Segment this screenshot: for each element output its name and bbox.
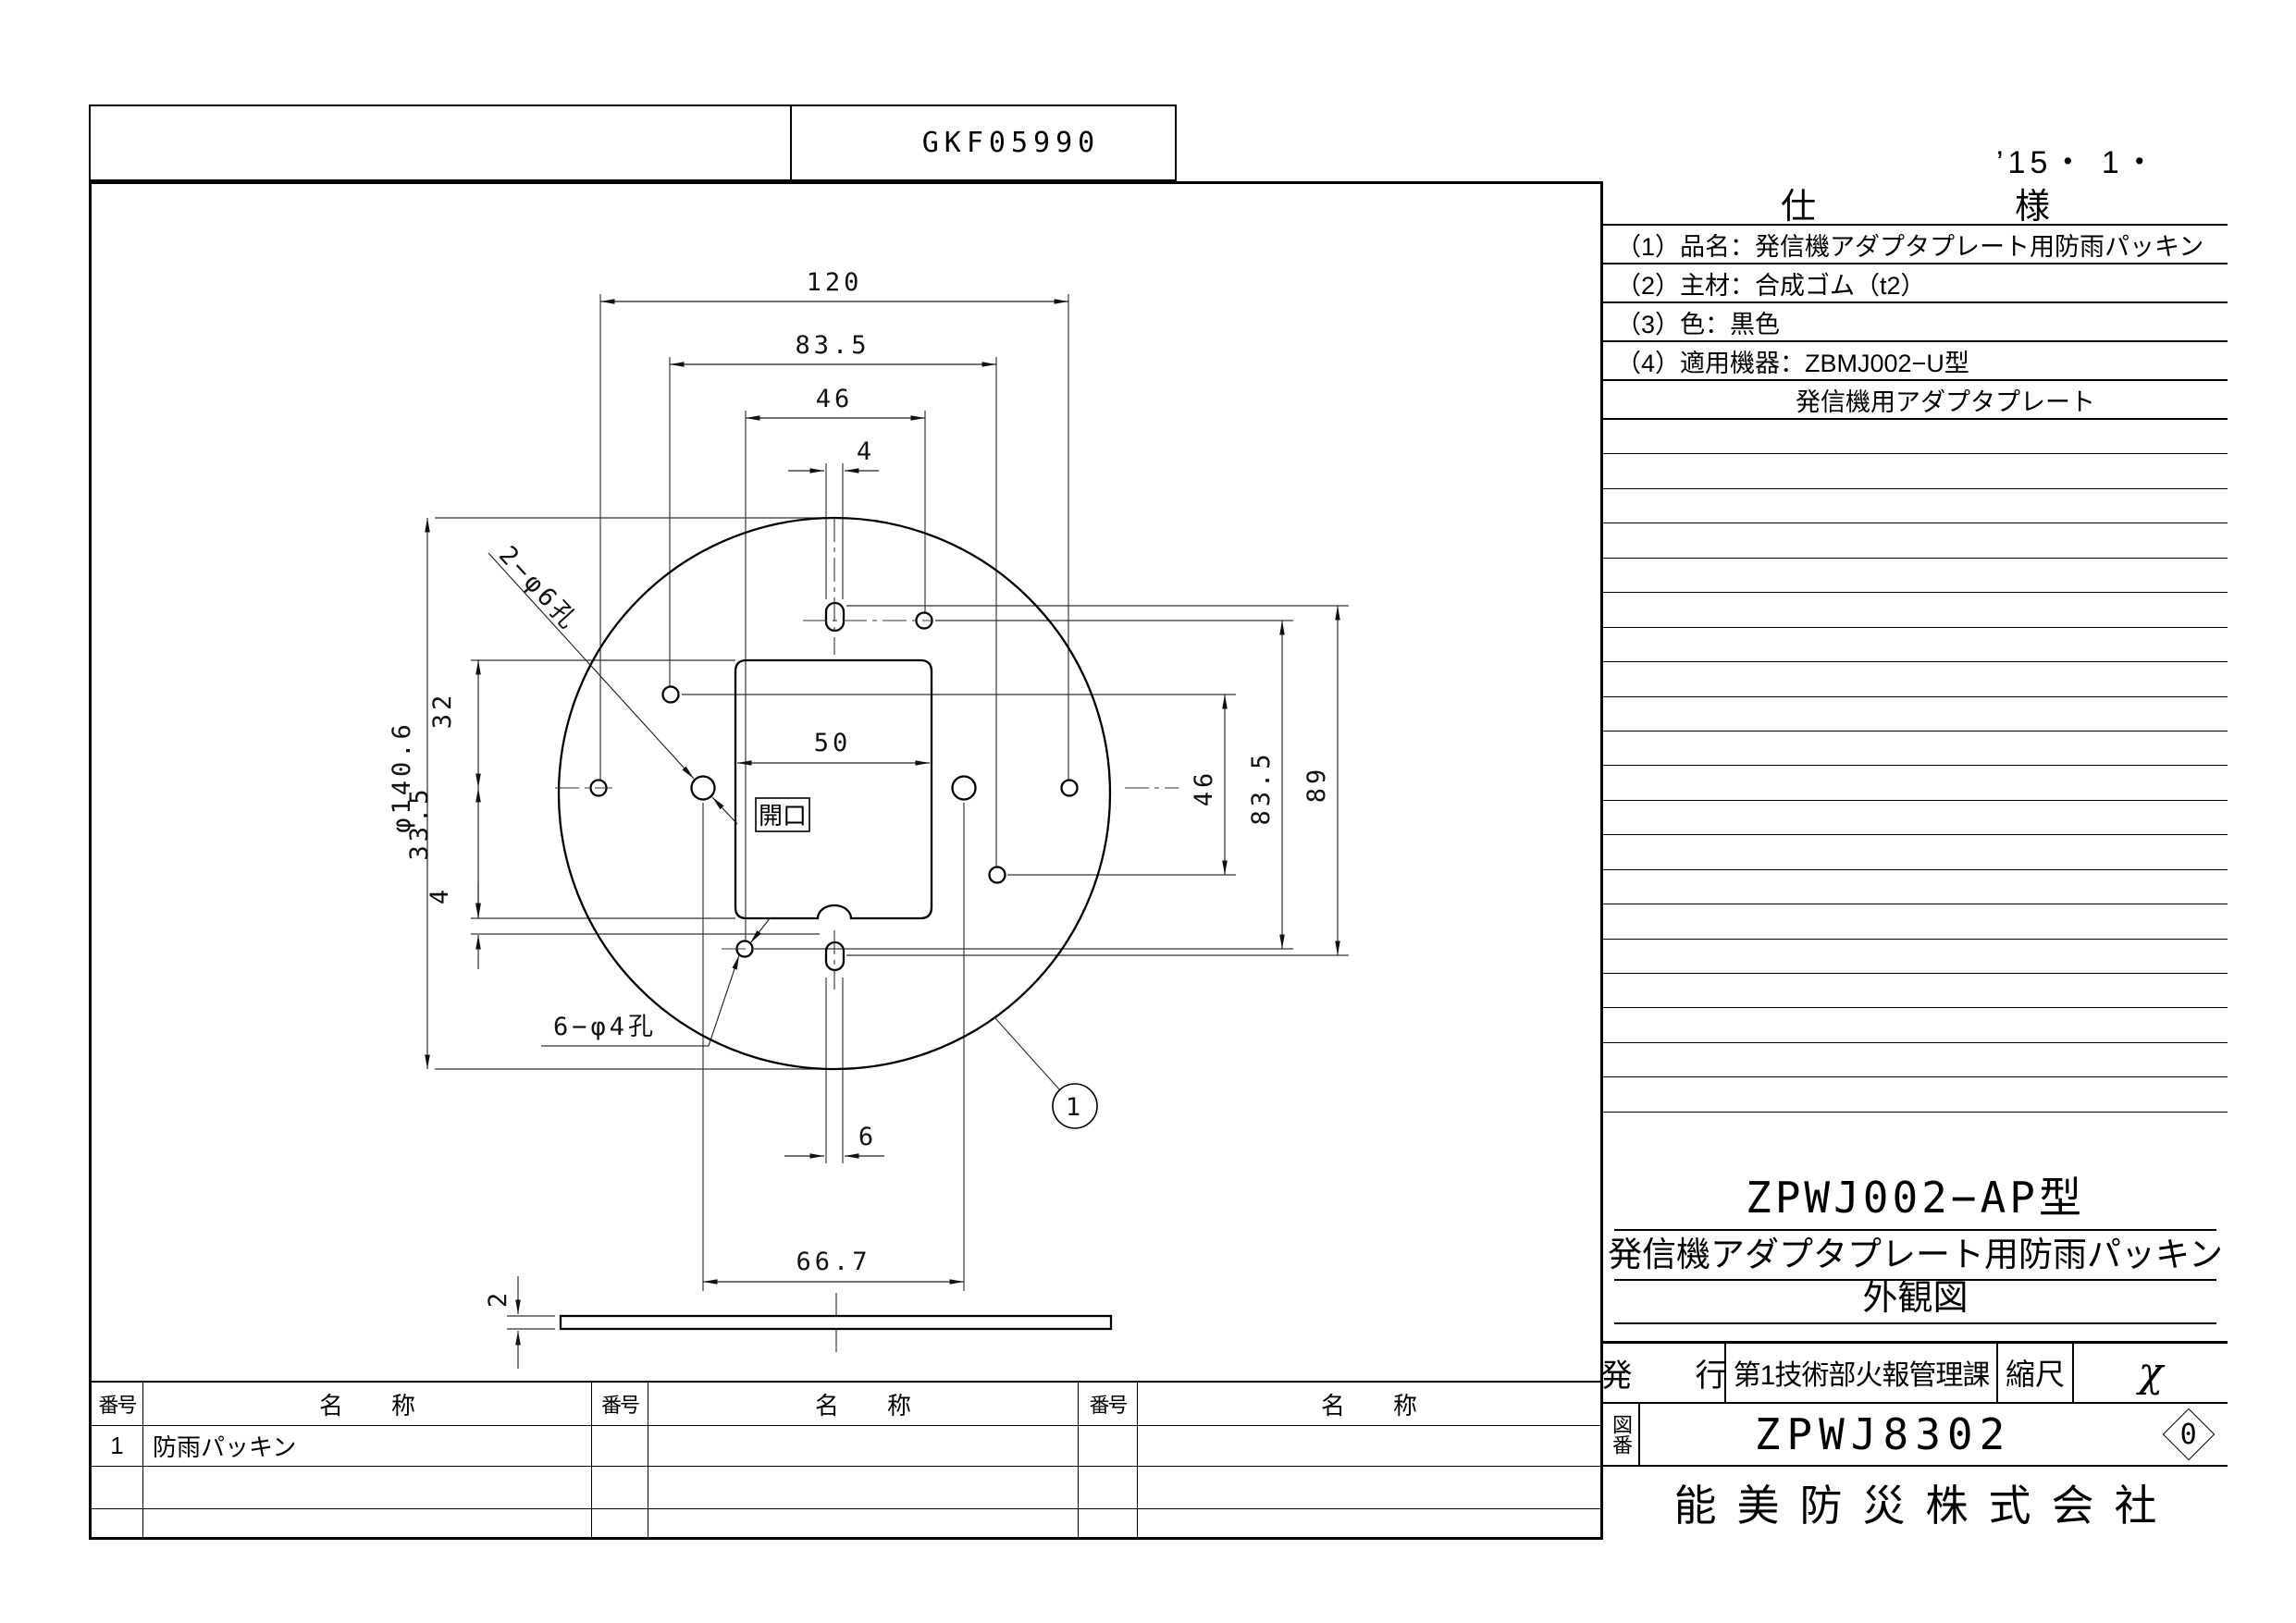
spec-title-panel: 仕 様 （1）品名：発信機アダプタプレート用防雨パッキン （2）主材：合成ゴム（…	[1600, 181, 2228, 1540]
dim-right-overall-89: 89	[1302, 606, 1338, 955]
parts-header-name-1: 名 称	[143, 1383, 592, 1426]
dim-text-89: 89	[1302, 766, 1331, 804]
spec-row-applicable-device-2: 発信機用アダプタプレート	[1603, 381, 2228, 420]
title-block: ZPWJ002−AP型 発信機アダプタプレート用防雨パッキン 外観図	[1603, 1113, 2228, 1344]
dim-text-66-7: 66.7	[796, 1248, 870, 1276]
revision-number: 0	[2180, 1418, 2197, 1450]
dim-text-6: 6	[858, 1123, 877, 1151]
dim-mid-width-83-5: 83.5	[670, 331, 996, 364]
spec-header-char-right: 様	[2015, 178, 2050, 228]
spec-empty-row	[1603, 870, 2228, 904]
drawing-number-value: ZPWJ8302	[1640, 1404, 2228, 1465]
opening-cutout	[735, 660, 932, 918]
balloon-callout: 1	[994, 1017, 1097, 1128]
spec-empty-row	[1603, 1077, 2228, 1112]
title-drawing-type: 外観図	[1614, 1281, 2216, 1324]
date-annotation: ’15・ 1・	[1996, 137, 2160, 182]
dim-text-32: 32	[428, 692, 457, 730]
parts-cell-empty	[143, 1509, 592, 1537]
drawing-number-row: 図番 ZPWJ8302 0	[1603, 1404, 2228, 1467]
parts-header-name-2: 名 称	[648, 1383, 1079, 1426]
parts-cell-empty	[1138, 1467, 1600, 1509]
issue-department: 第1技術部火報管理課	[1726, 1344, 1998, 1402]
spec-empty-row	[1603, 523, 2228, 558]
dim-text-33-5: 33.5	[405, 785, 434, 860]
top-title-strip: GKF05990	[89, 105, 1177, 181]
dim-slot-bottom-6: 6	[784, 1123, 884, 1156]
spec-empty-row	[1603, 904, 2228, 939]
spec-empty-row	[1603, 559, 2228, 593]
parts-table: 番号 名 称 番号 名 称 番号 名 称 1 防雨パッキン	[92, 1381, 1600, 1537]
parts-header-no-2: 番号	[592, 1383, 648, 1426]
parts-cell-empty	[592, 1426, 648, 1467]
hole-phi4-lower-right	[990, 867, 1006, 883]
parts-cell-empty	[92, 1467, 143, 1509]
dim-text-thickness: 2	[484, 1289, 512, 1308]
parts-cell-empty	[592, 1467, 648, 1509]
spec-empty-row	[1603, 766, 2228, 800]
drawing-number-label: 図番	[1603, 1404, 1640, 1465]
hole-phi4-right	[1062, 781, 1078, 796]
parts-cell-empty	[1138, 1509, 1600, 1537]
spec-header-char-left: 仕	[1781, 178, 1816, 228]
dim-text-46: 46	[816, 385, 854, 413]
scale-label: 縮尺	[1998, 1344, 2074, 1402]
extension-lines	[435, 294, 1349, 1352]
company-name: 能美防災株式会社	[1603, 1467, 2228, 1540]
hole-phi4-upper-left	[663, 687, 679, 703]
spec-empty-row	[1603, 489, 2228, 523]
drawing-sheet: GKF05990 ’15・ 1・	[0, 0, 2296, 1623]
spec-row-applicable-device: （4）適用機器：ZBMJ002−U型	[1603, 342, 2228, 381]
dim-text-notch-4: 4	[426, 886, 454, 904]
spec-empty-row	[1603, 454, 2228, 488]
label-small-holes: 6−φ4孔	[553, 1013, 657, 1041]
dim-text-right-46: 46	[1190, 769, 1218, 807]
spec-empty-row	[1603, 420, 2228, 454]
spec-empty-row	[1603, 697, 2228, 732]
parts-cell-empty	[648, 1509, 1079, 1537]
spec-empty-row	[1603, 801, 2228, 835]
parts-cell-empty	[1079, 1509, 1138, 1537]
opening-label: 開口	[756, 798, 809, 831]
hole-phi6-left	[692, 777, 715, 800]
dim-right-inner-46: 46	[1190, 695, 1225, 875]
parts-header-name-3: 名 称	[1138, 1383, 1600, 1426]
spec-empty-row	[1603, 835, 2228, 869]
spec-empty-row	[1603, 593, 2228, 627]
top-strip-blank-cell	[91, 106, 792, 179]
parts-cell-empty	[1079, 1426, 1138, 1467]
parts-cell-empty	[1079, 1467, 1138, 1509]
spec-row-material: （2）主材：合成ゴム（t2）	[1603, 264, 2228, 303]
hole-phi6-right	[953, 777, 976, 800]
dim-text-50: 50	[814, 729, 852, 757]
dim-inner-width-46: 46	[746, 385, 925, 418]
parts-cell-empty	[92, 1509, 143, 1537]
parts-row-no: 1	[92, 1426, 143, 1467]
dim-hole-span-66-7: 66.7	[703, 1248, 964, 1282]
side-view-plate	[561, 1316, 1111, 1329]
parts-cell-empty	[1138, 1426, 1600, 1467]
dim-top-width-120: 120	[600, 268, 1068, 301]
opening-label-text: 開口	[759, 802, 807, 830]
issue-label: 発 行	[1603, 1344, 1726, 1402]
drawing-canvas: 120 83.5 46 4 50 φ140.6 32 33.5	[92, 184, 1600, 1381]
dim-text-83-5: 83.5	[795, 331, 870, 360]
parts-cell-empty	[143, 1467, 592, 1509]
spec-empty-row	[1603, 628, 2228, 662]
balloon-number: 1	[1066, 1093, 1084, 1122]
dim-text-right-83-5: 83.5	[1247, 750, 1276, 825]
spec-empty-row	[1603, 1043, 2228, 1077]
spec-empty-row	[1603, 1008, 2228, 1042]
leader-small-holes: 6−φ4孔	[541, 917, 771, 1046]
parts-cell-empty	[592, 1509, 648, 1537]
dim-opening-50: 50	[737, 729, 930, 763]
spec-empty-row	[1603, 732, 2228, 766]
dim-text-slot-4: 4	[857, 437, 875, 466]
spec-empty-row	[1603, 662, 2228, 696]
dim-text-120: 120	[807, 268, 863, 297]
scale-value: χ	[2074, 1344, 2228, 1402]
parts-cell-empty	[648, 1426, 1079, 1467]
parts-header-no-3: 番号	[1079, 1383, 1138, 1426]
dim-right-mid-83-5: 83.5	[1247, 621, 1282, 949]
spec-empty-row	[1603, 974, 2228, 1008]
spec-row-color: （3）色：黒色	[1603, 303, 2228, 342]
document-code: GKF05990	[792, 106, 1175, 179]
issue-row: 発 行 第1技術部火報管理課 縮尺 χ	[1603, 1344, 2228, 1404]
title-model: ZPWJ002−AP型	[1614, 1113, 2216, 1231]
spec-row-product-name: （1）品名：発信機アダプタプレート用防雨パッキン	[1603, 226, 2228, 264]
label-large-holes: 2−φ6孔	[493, 541, 585, 637]
side-view: 2	[484, 1276, 1111, 1369]
spec-header: 仕 様	[1603, 181, 2228, 226]
dim-upper-offset-32: 32	[428, 660, 478, 788]
parts-row-name: 防雨パッキン	[143, 1426, 592, 1467]
parts-header-no-1: 番号	[92, 1383, 143, 1426]
parts-cell-empty	[648, 1467, 1079, 1509]
dim-slot-top-4: 4	[788, 437, 879, 471]
spec-empty-row	[1603, 940, 2228, 974]
dim-notch-4: 4	[426, 882, 478, 969]
